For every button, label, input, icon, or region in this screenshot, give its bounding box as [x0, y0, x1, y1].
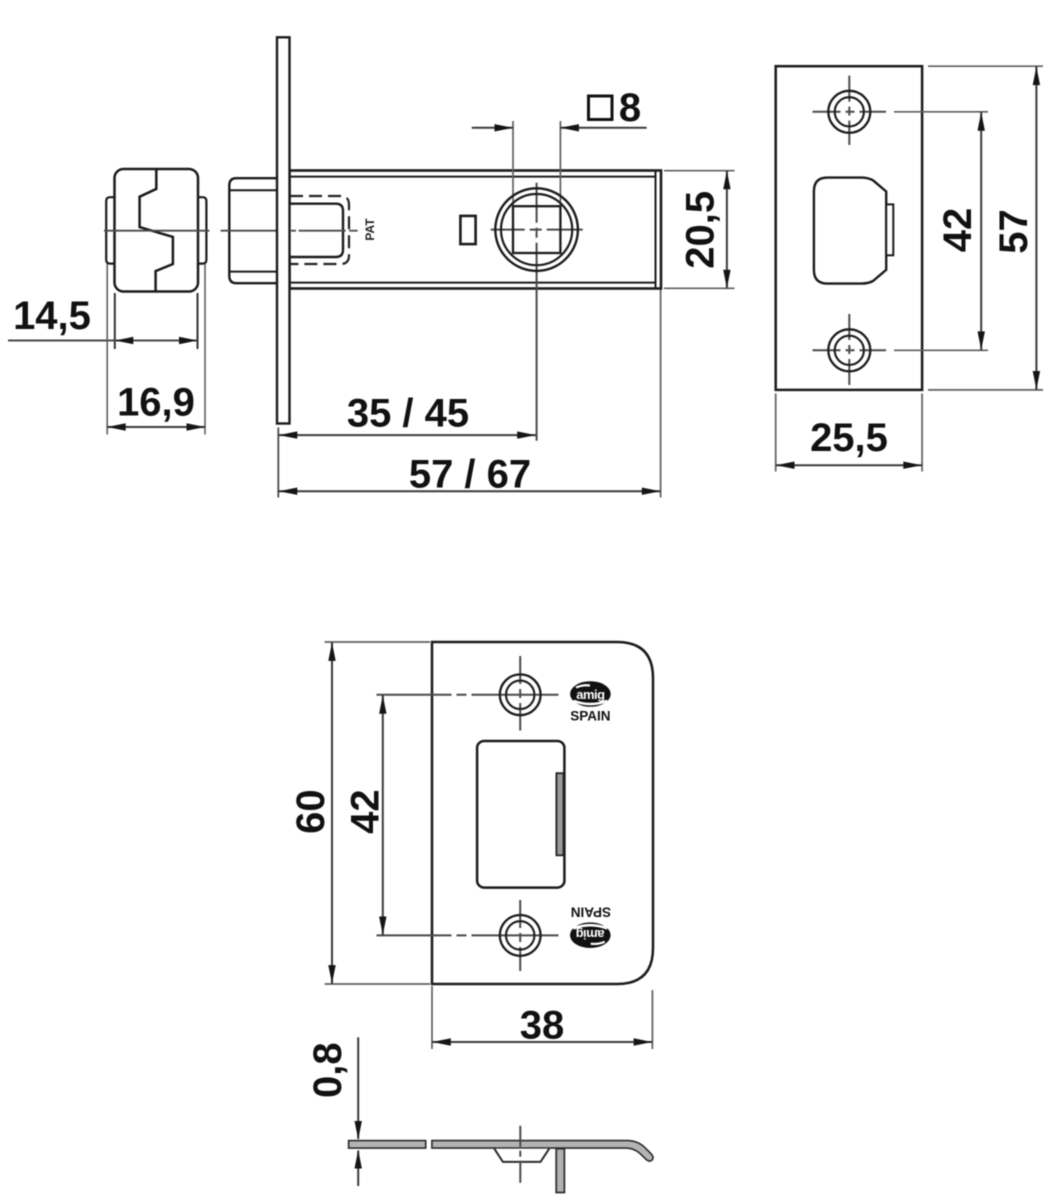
svg-text:38: 38: [520, 1004, 565, 1048]
svg-text:SPAIN: SPAIN: [571, 905, 611, 920]
svg-text:42: 42: [344, 789, 388, 834]
svg-text:14,5: 14,5: [13, 294, 91, 338]
svg-text:60: 60: [289, 789, 333, 834]
svg-text:20,5: 20,5: [679, 191, 723, 269]
svg-text:SPAIN: SPAIN: [570, 708, 610, 723]
svg-text:PAT: PAT: [363, 218, 377, 241]
svg-text:57: 57: [992, 209, 1036, 254]
svg-text:25,5: 25,5: [810, 416, 888, 460]
svg-text:16,9: 16,9: [117, 381, 195, 425]
svg-text:0,8: 0,8: [306, 1042, 350, 1098]
svg-text:42: 42: [936, 208, 980, 253]
svg-text:amig: amig: [576, 927, 605, 942]
svg-text:8: 8: [619, 86, 641, 130]
svg-text:amig: amig: [576, 687, 605, 702]
svg-text:35 / 45: 35 / 45: [347, 392, 469, 436]
svg-text:57 / 67: 57 / 67: [409, 453, 531, 497]
